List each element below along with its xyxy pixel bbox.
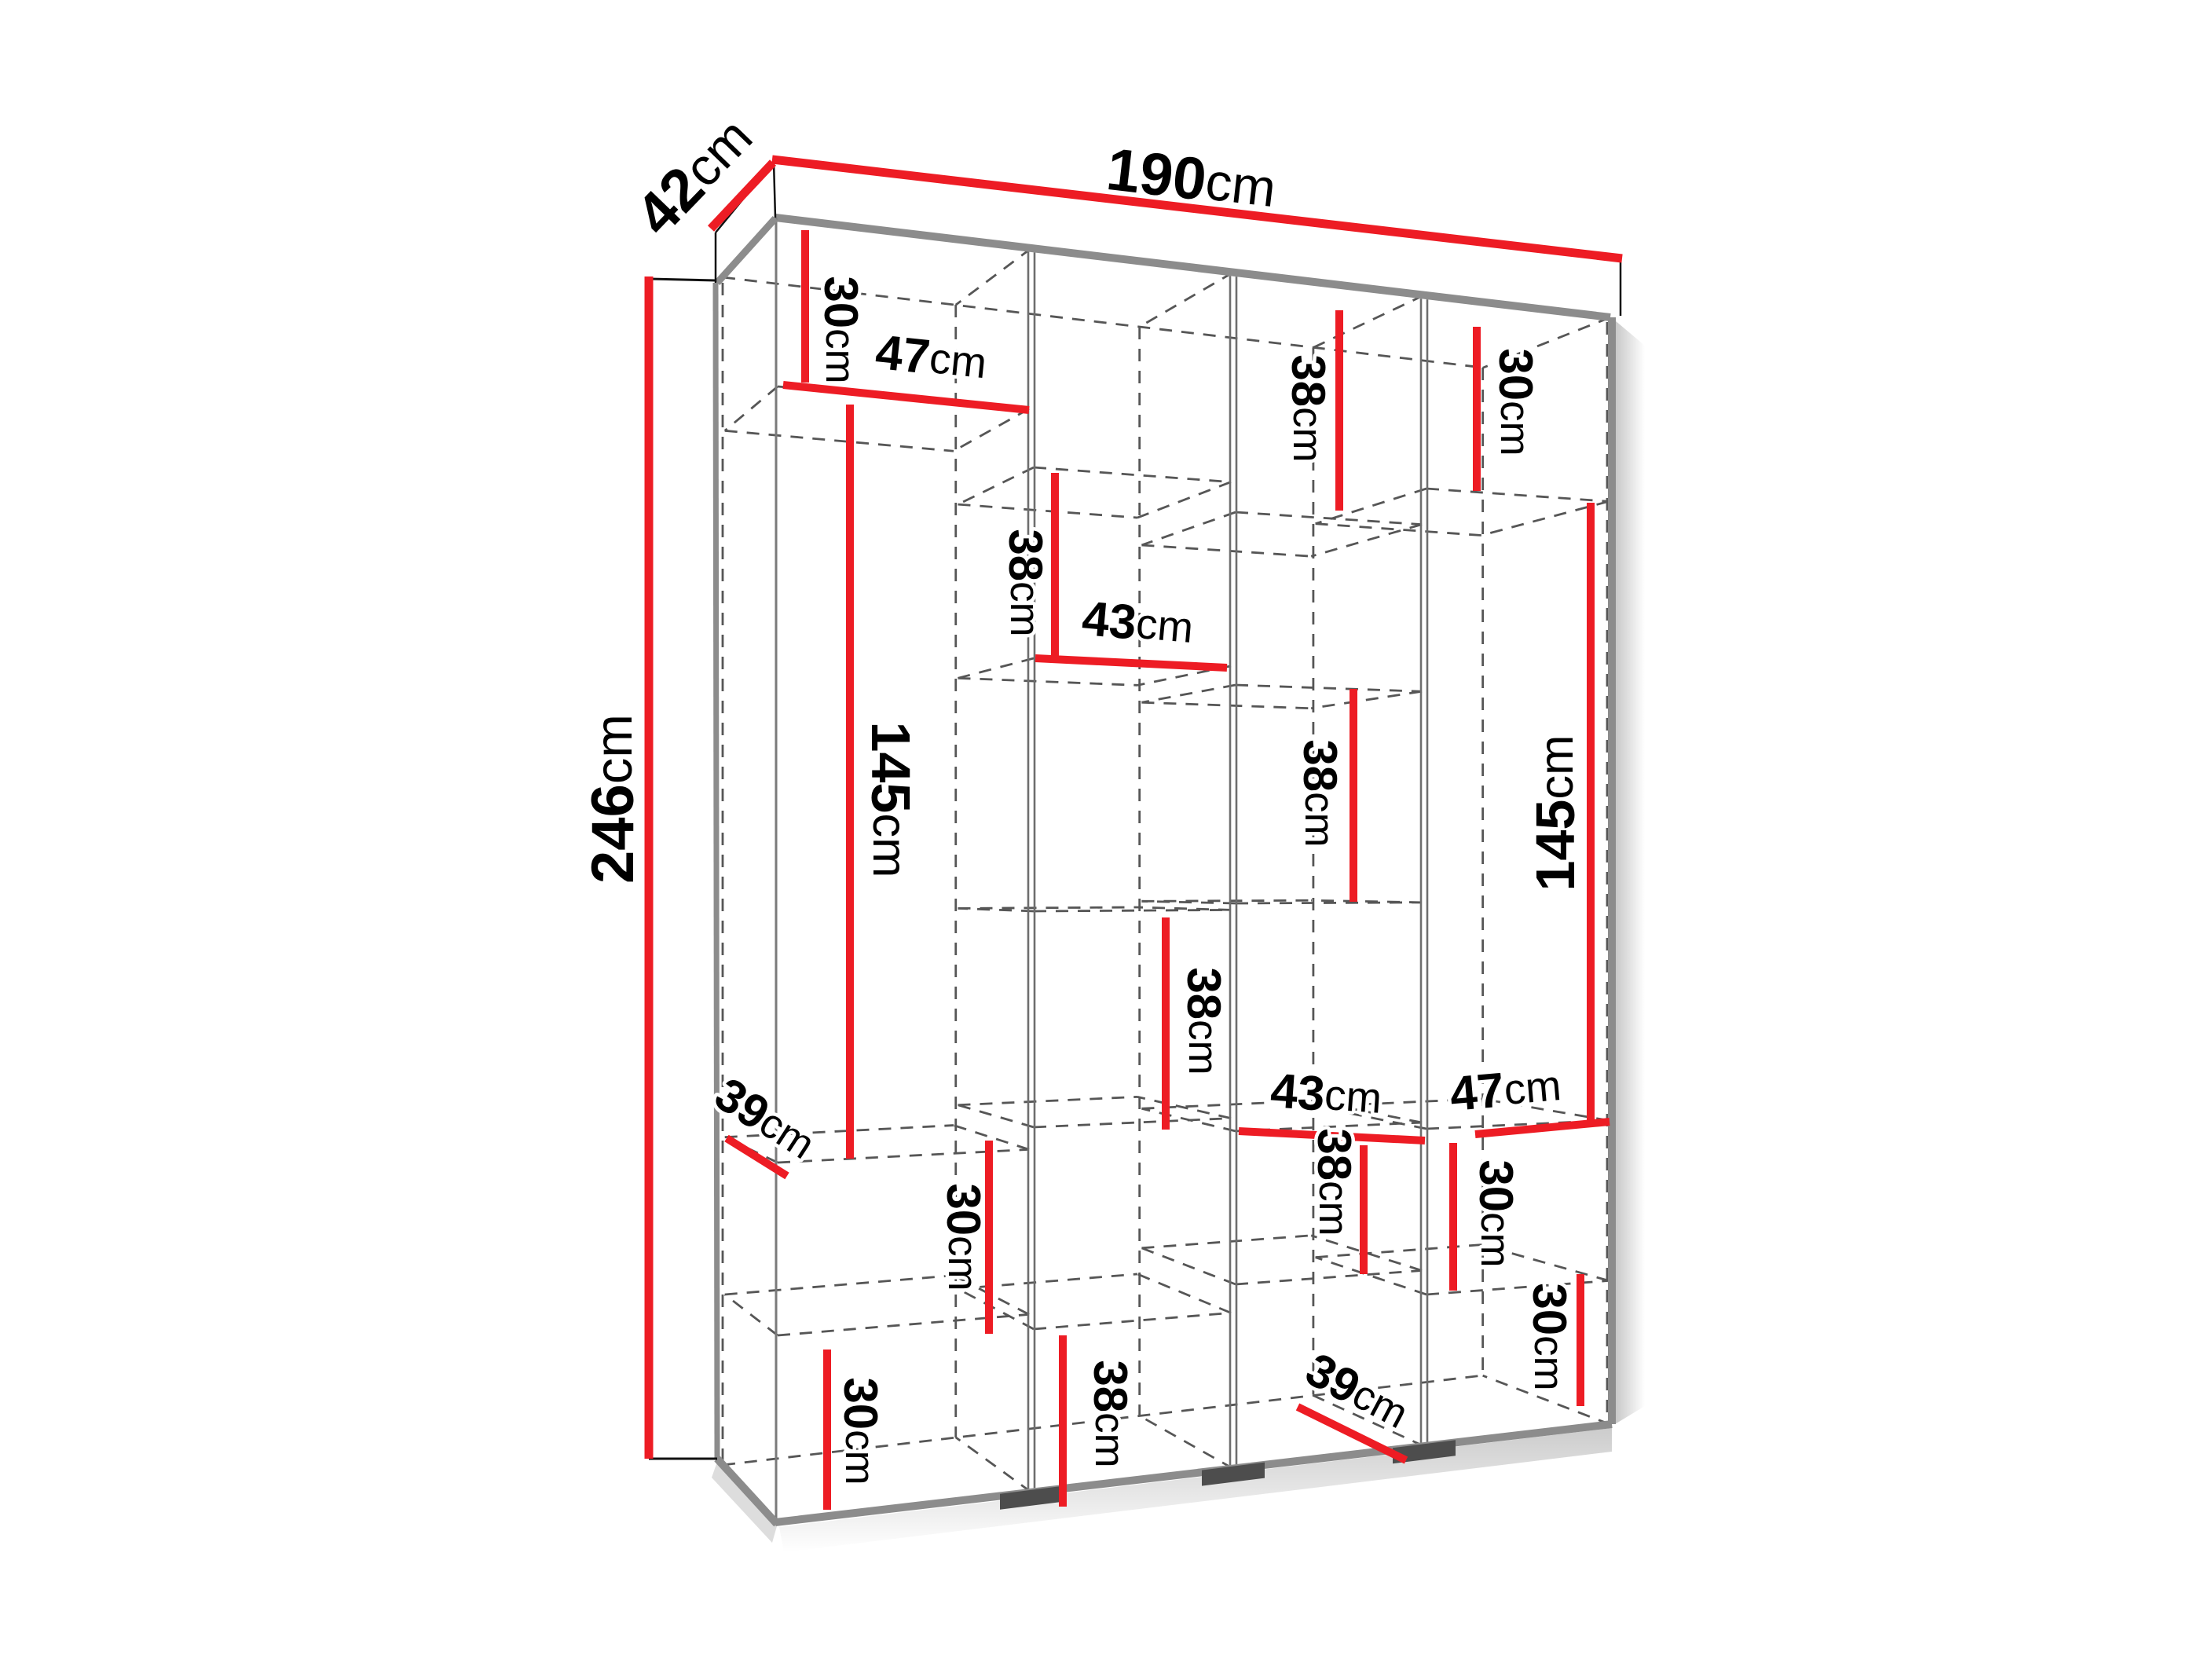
dim-overall-height-left: 246cm [580,276,717,1459]
dim-col4-hang-145: 145cm [1525,503,1591,1122]
dimension-label: 145cm [860,722,921,878]
dim-col1-bottom-30: 30cm [827,1350,887,1510]
dimension-label: 43cm [1080,591,1196,655]
dimension-label: 38cm [1308,1128,1361,1236]
dim-col1-hang-145: 145cm [850,405,921,1159]
dimension-label: 38cm [1084,1360,1137,1467]
dim-col2-shelf-43: 43cm [1035,591,1227,668]
dimension-label: 246cm [580,714,646,884]
dimension-label: 30cm [937,1183,990,1291]
dim-col2-mid-38: 38cm [1166,917,1230,1130]
dim-col4-bottom-30: 30cm [1523,1274,1580,1406]
dimension-label: 145cm [1525,735,1586,892]
dimension-label: 30cm [834,1377,887,1485]
dim-col3-depth-39: 39cm [1298,1342,1418,1460]
dimension-label: 38cm [1294,739,1346,847]
dim-col4-top-30: 30cm [1477,327,1542,491]
dim-col3-mid-38: 38cm [1294,689,1353,902]
dimension-label: 43cm [1269,1064,1383,1126]
wardrobe-dimension-diagram: 190cm42cm246cm30cm47cm145cm39cm30cm30cm3… [0,0,2212,1659]
dim-col4-mid-30: 30cm [1453,1143,1522,1291]
side-panel [716,162,777,1524]
dimension-label: 30cm [1523,1283,1576,1390]
dim-col1-top-30: 30cm [805,230,867,384]
dim-col1-lower-30: 30cm [937,1141,990,1334]
dimension-label: 38cm [1282,354,1335,462]
dimension-label: 38cm [1177,967,1230,1075]
wardrobe-3d-drawing: 190cm42cm246cm30cm47cm145cm39cm30cm30cm3… [0,0,2212,1659]
dimension-label: 47cm [1448,1058,1563,1122]
dimension-label: 30cm [1470,1159,1522,1267]
dim-col3-lower-38: 38cm [1308,1128,1364,1274]
dimension-label: 30cm [1489,348,1542,456]
dimension-label: 38cm [999,529,1052,636]
dim-col2-upper-38: 38cm [999,473,1055,658]
dimension-label: 39cm [1298,1342,1418,1440]
dim-col3-top-38: 38cm [1282,310,1339,511]
dim-col4-shelf-47: 47cm [1448,1058,1610,1134]
dimension-label: 47cm [873,325,989,390]
dimension-label: 30cm [815,276,867,383]
